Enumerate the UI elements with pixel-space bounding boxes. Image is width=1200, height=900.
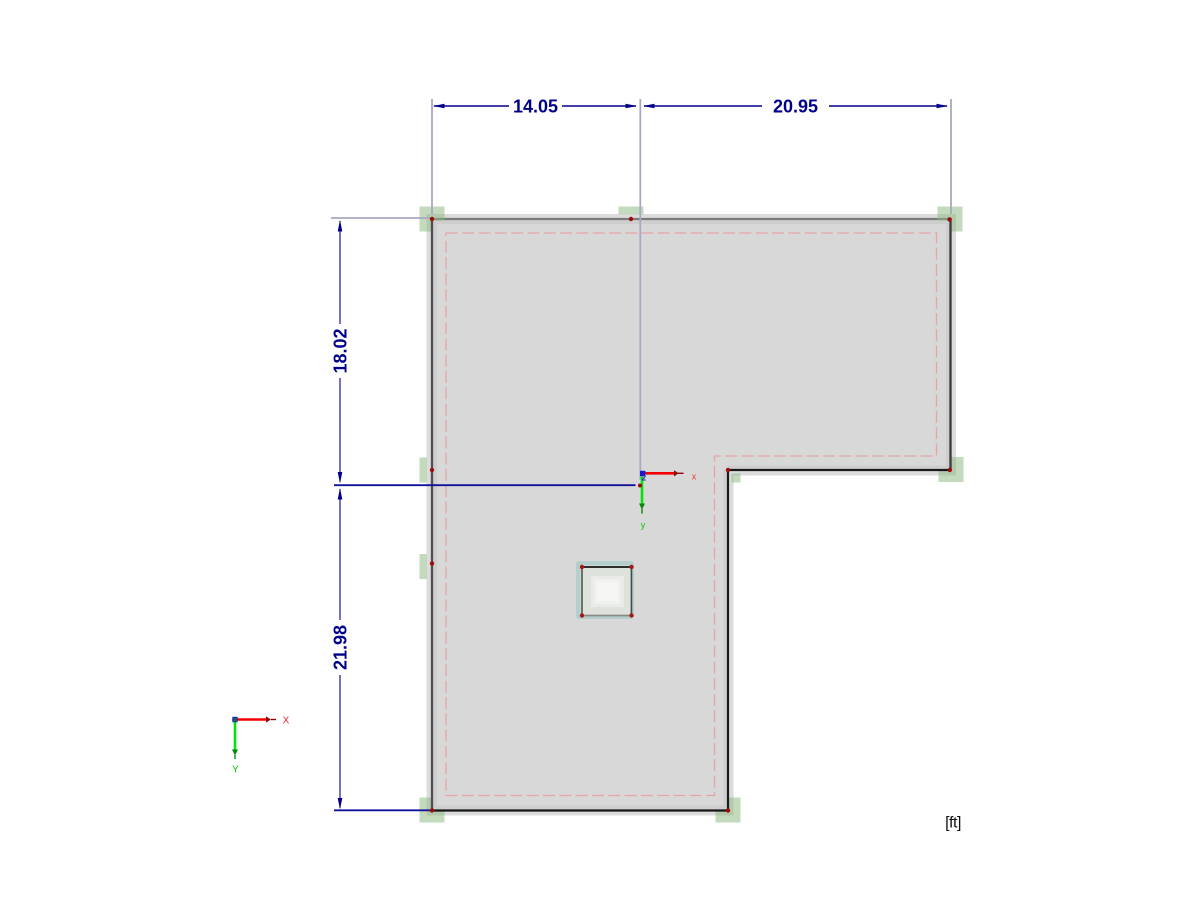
svg-text:20.95: 20.95 <box>773 97 818 117</box>
svg-text:21.98: 21.98 <box>331 625 351 670</box>
svg-text:X: X <box>283 716 290 727</box>
svg-text:14.05: 14.05 <box>513 97 558 117</box>
svg-text:x: x <box>692 471 697 481</box>
svg-text:[ft]: [ft] <box>945 815 961 832</box>
svg-text:Y: Y <box>232 765 239 776</box>
svg-text:y: y <box>641 520 646 530</box>
svg-text:2: 2 <box>642 474 647 483</box>
svg-text:18.02: 18.02 <box>331 328 351 373</box>
